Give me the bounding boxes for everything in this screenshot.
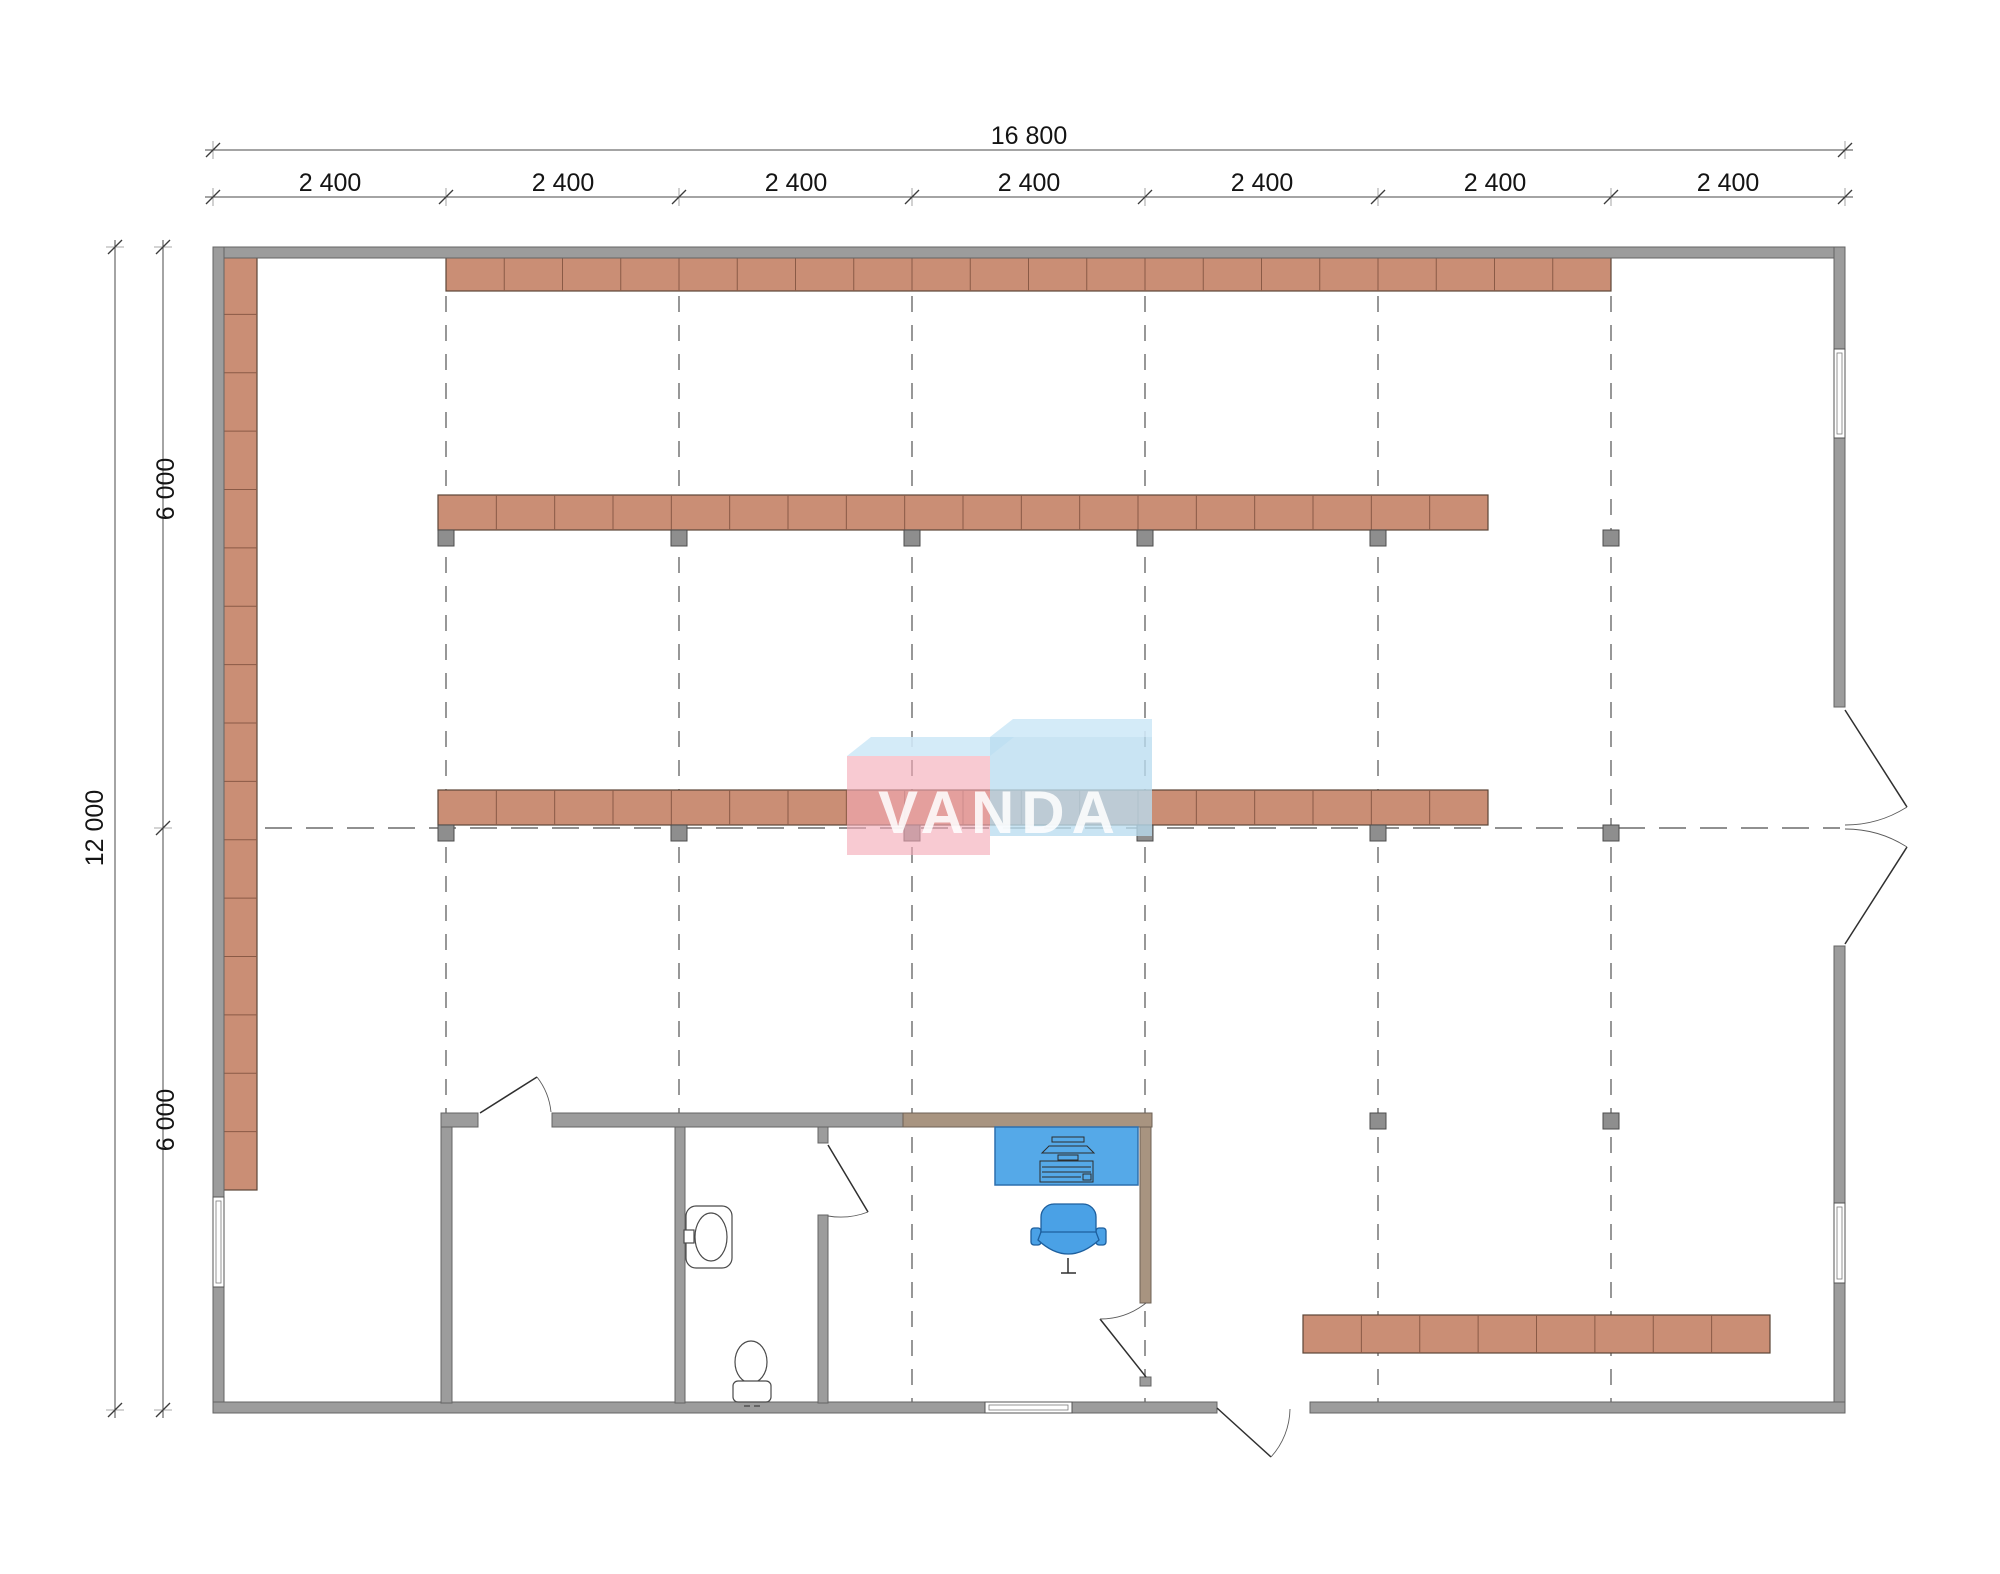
- office-entry-door: [480, 1077, 551, 1113]
- desk-room-door-jamb: [1140, 1377, 1151, 1386]
- wall-bottom-2: [1072, 1402, 1217, 1413]
- wall-right-2: [1834, 438, 1845, 707]
- floor-plan-page: 16 800 2 400 2 400 2 400 2 400 2 400 2 4…: [0, 0, 2000, 1574]
- logo-bevel-right: [990, 719, 1152, 737]
- dim-segment-4: 2 400: [998, 169, 1061, 197]
- column: [671, 825, 687, 841]
- wc-left-wall: [675, 1127, 685, 1403]
- window-right-top: [1834, 349, 1845, 438]
- dim-segment-5: 2 400: [1231, 169, 1294, 197]
- dim-segment-3: 2 400: [765, 169, 828, 197]
- wall-right-1: [1834, 247, 1845, 349]
- office-left-wall: [441, 1127, 452, 1403]
- office-top-wall-b: [552, 1113, 903, 1127]
- wall-right-4: [1834, 1283, 1845, 1413]
- desk: [995, 1127, 1138, 1185]
- floor-plan-canvas: 16 800 2 400 2 400 2 400 2 400 2 400 2 4…: [0, 0, 2000, 1574]
- dim-segment-2: 2 400: [532, 169, 595, 197]
- wall-top: [213, 247, 1845, 258]
- wall-left-upper: [213, 247, 224, 1197]
- wall-left-lower: [213, 1287, 224, 1413]
- wc-right-wall-stub: [818, 1127, 828, 1143]
- column: [1137, 530, 1153, 546]
- dim-half-height-bottom: 6 000: [152, 1089, 180, 1152]
- vanda-logo: VANDA: [847, 719, 1152, 855]
- dim-segment-6: 2 400: [1464, 169, 1527, 197]
- office-chair: [1031, 1204, 1106, 1273]
- window-left: [213, 1197, 224, 1287]
- sink: [684, 1206, 732, 1268]
- column: [1603, 530, 1619, 546]
- dim-segment-7: 2 400: [1697, 169, 1760, 197]
- column: [438, 825, 454, 841]
- window-bottom: [985, 1402, 1072, 1413]
- desk-room-door: [1100, 1303, 1146, 1377]
- desk-room-right-wall: [1140, 1127, 1151, 1303]
- dim-total-width: 16 800: [991, 122, 1067, 150]
- column: [438, 530, 454, 546]
- logo-text: VANDA: [878, 779, 1122, 846]
- column: [1370, 530, 1386, 546]
- column: [904, 530, 920, 546]
- office-top-wall-a: [441, 1113, 478, 1127]
- wall-bottom-1: [213, 1402, 985, 1413]
- column: [671, 530, 687, 546]
- dim-total-height: 12 000: [81, 790, 109, 866]
- column: [1603, 825, 1619, 841]
- toilet: [733, 1341, 771, 1406]
- column: [1370, 825, 1386, 841]
- dim-segment-1: 2 400: [299, 169, 362, 197]
- desk-room-top-wall: [903, 1113, 1152, 1127]
- double-door-right: [1845, 710, 1907, 944]
- wc-door: [828, 1145, 868, 1217]
- column: [1603, 1113, 1619, 1129]
- dim-half-height-top: 6 000: [152, 458, 180, 521]
- logo-bevel-left: [847, 737, 1014, 756]
- exterior-door-bottom: [1217, 1408, 1290, 1457]
- bathroom-fixtures: [684, 1206, 771, 1406]
- wall-right-3: [1834, 946, 1845, 1203]
- wc-right-wall: [818, 1215, 828, 1403]
- column: [1370, 1113, 1386, 1129]
- grid-lines: [446, 296, 1611, 1402]
- wall-bottom-3: [1310, 1402, 1845, 1413]
- office-furniture: [995, 1127, 1138, 1273]
- window-right-bottom: [1834, 1203, 1845, 1283]
